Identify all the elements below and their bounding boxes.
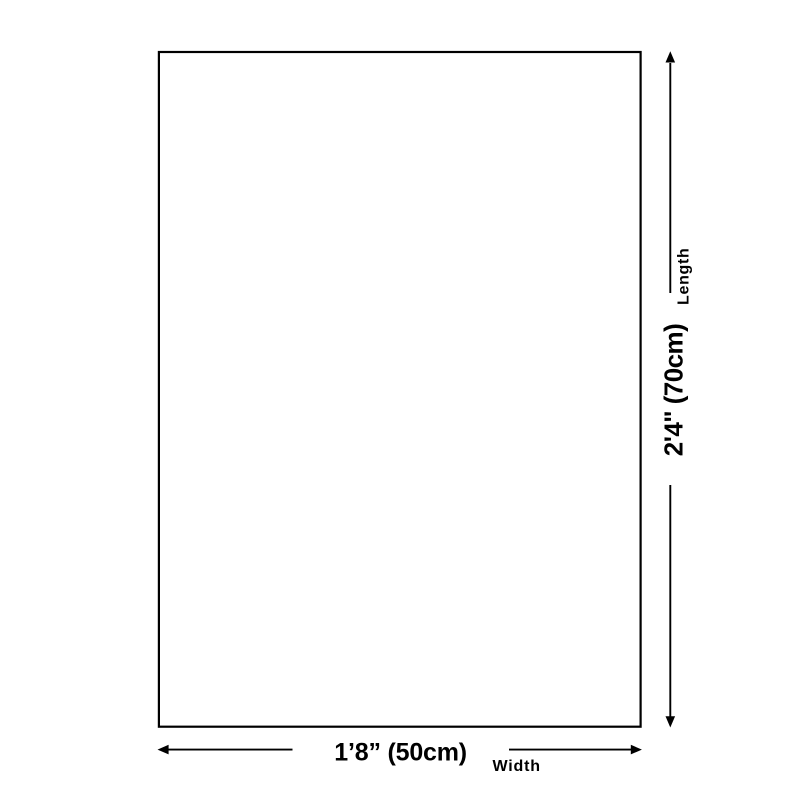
svg-text:Width: Width	[493, 758, 541, 775]
svg-text:2'4" (70cm): 2'4" (70cm)	[658, 324, 688, 456]
svg-text:1’8” (50cm): 1’8” (50cm)	[334, 739, 467, 767]
svg-text:Length: Length	[676, 247, 693, 305]
